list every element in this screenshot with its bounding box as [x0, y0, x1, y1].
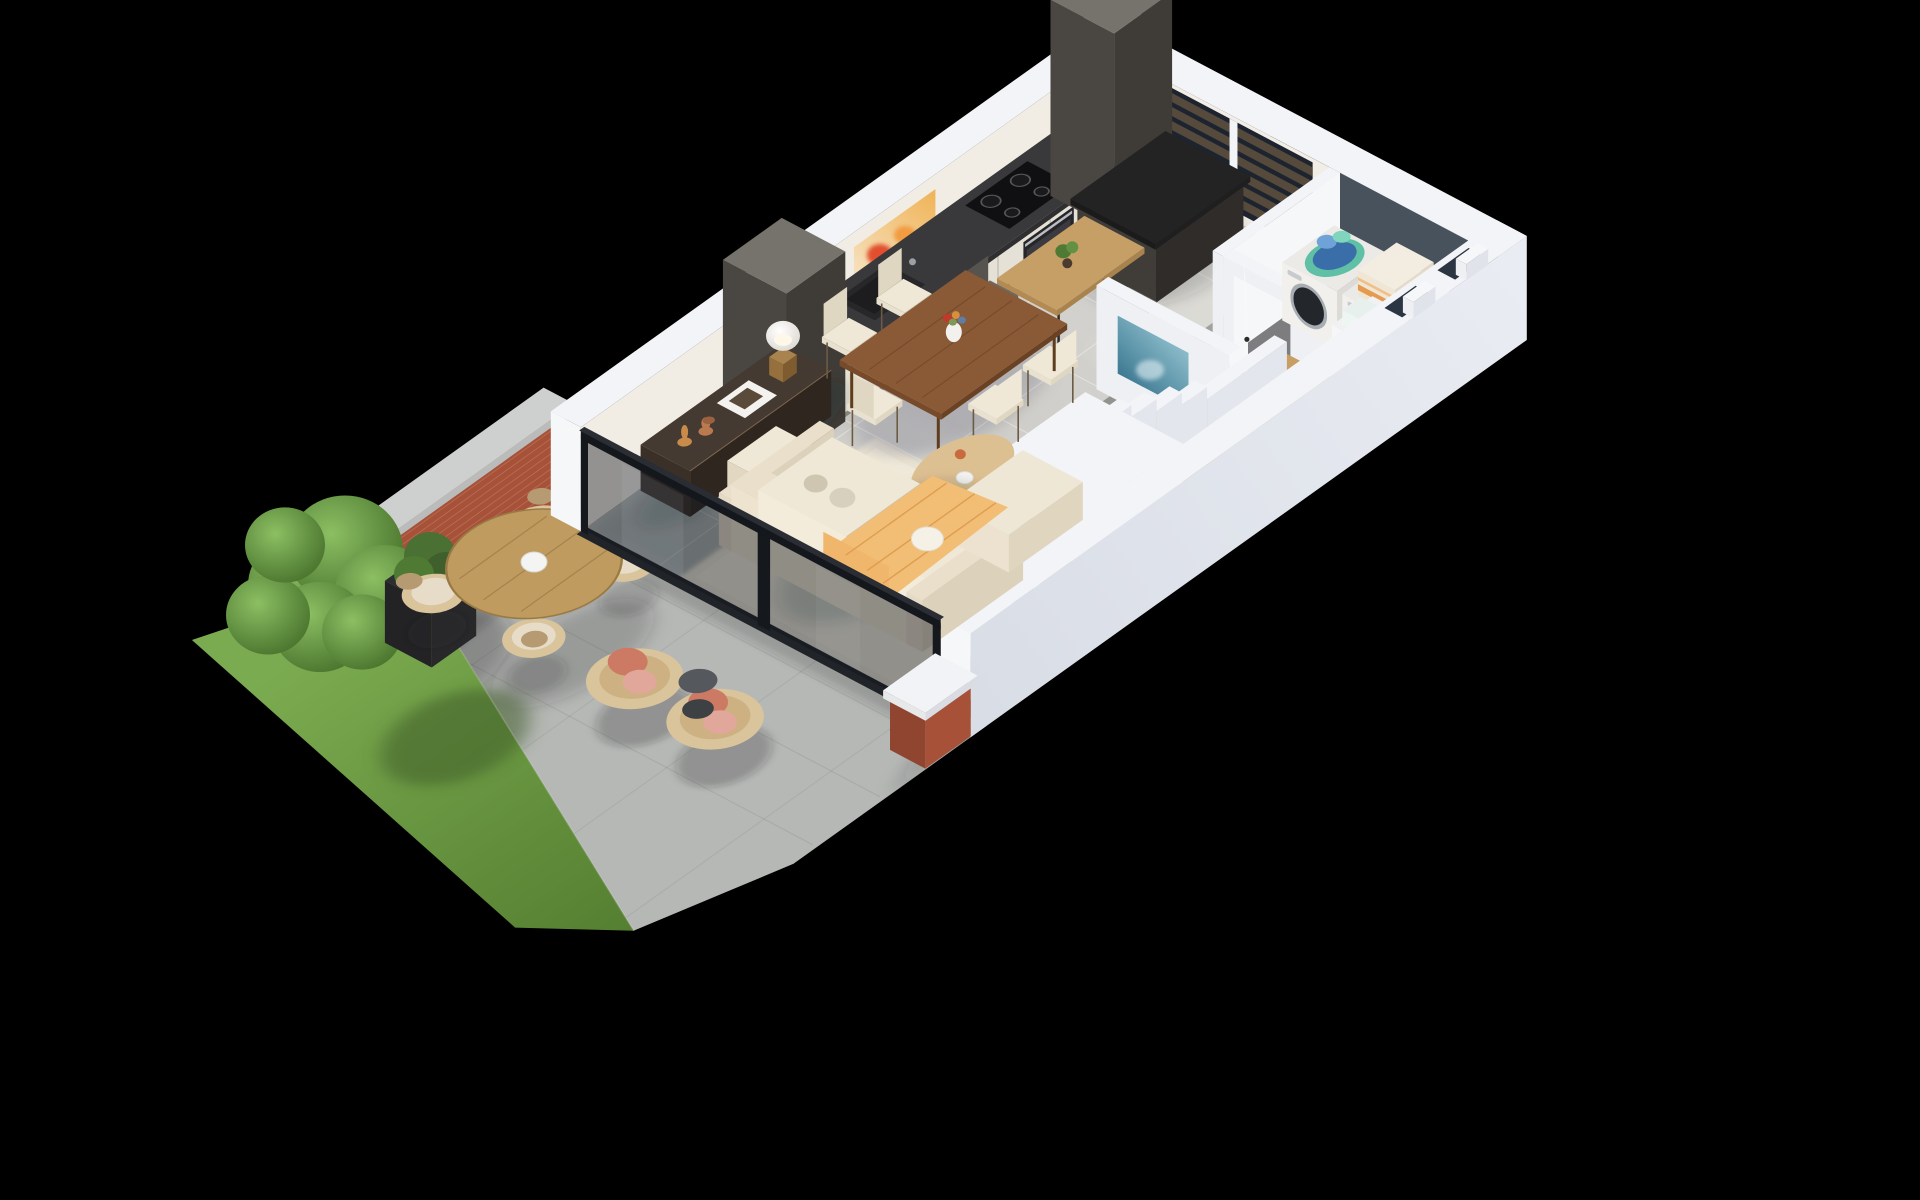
floorplan-3d-render — [0, 0, 1920, 1200]
tree-canopy6 — [245, 507, 325, 582]
coffee-vase — [955, 449, 966, 459]
lounge-seat-cushion0 — [623, 670, 657, 694]
faucet — [909, 258, 916, 265]
flowers4 — [949, 319, 957, 326]
pillow-white — [911, 527, 943, 551]
vase-ochre-neck — [681, 425, 688, 439]
door-handle — [1244, 337, 1249, 342]
wall-west-end — [551, 411, 581, 531]
flowers2 — [952, 311, 960, 319]
plant-leaves2 — [1066, 241, 1078, 253]
pillow-grey-1 — [829, 488, 855, 508]
art-b-blob — [1136, 360, 1164, 380]
tree-canopy4 — [226, 576, 310, 655]
pillow-grey-2 — [804, 475, 828, 493]
glass-post-mid — [758, 527, 770, 632]
hex-centerpiece — [521, 552, 547, 572]
plant-pot — [1062, 258, 1072, 268]
flowers3 — [958, 317, 966, 324]
glass-post-w — [581, 433, 588, 535]
clothes-blob2 — [1333, 231, 1351, 243]
isometric-scene — [0, 0, 1920, 1200]
lamp-glow — [774, 334, 792, 346]
